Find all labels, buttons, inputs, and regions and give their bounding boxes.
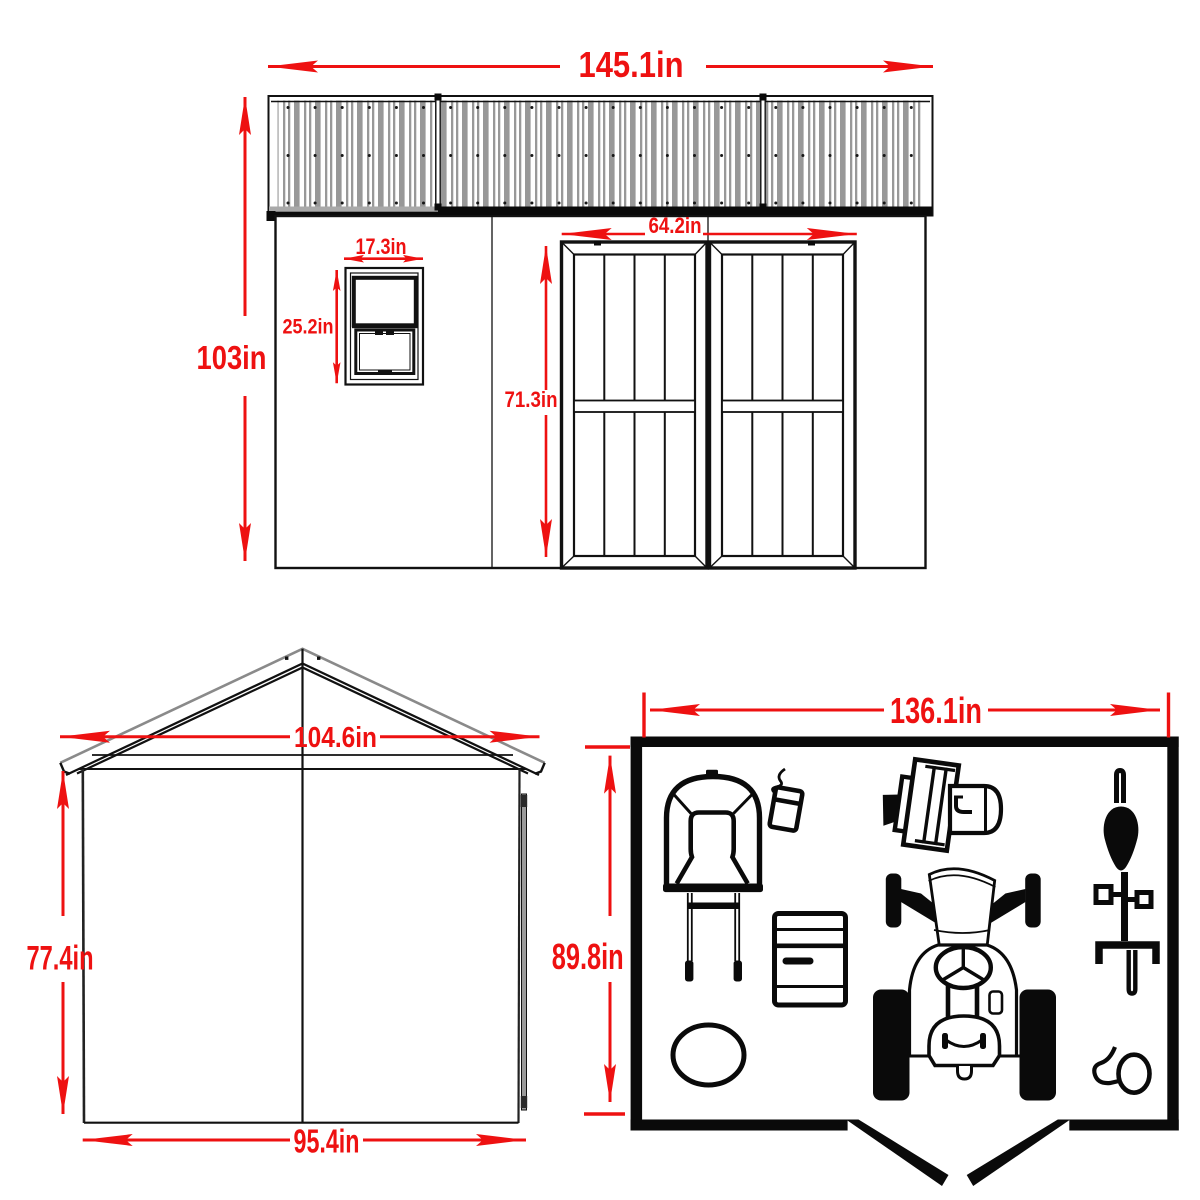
svg-text:103in: 103in <box>197 340 267 377</box>
svg-text:136.1in: 136.1in <box>890 690 982 731</box>
svg-text:25.2in: 25.2in <box>283 316 334 339</box>
svg-text:17.3in: 17.3in <box>356 234 407 259</box>
svg-text:77.4in: 77.4in <box>27 940 94 978</box>
svg-text:71.3in: 71.3in <box>505 387 558 412</box>
svg-text:95.4in: 95.4in <box>294 1123 360 1160</box>
svg-text:104.6in: 104.6in <box>294 722 377 754</box>
svg-text:64.2in: 64.2in <box>649 213 702 238</box>
svg-text:145.1in: 145.1in <box>579 44 684 85</box>
svg-text:89.8in: 89.8in <box>552 936 624 977</box>
